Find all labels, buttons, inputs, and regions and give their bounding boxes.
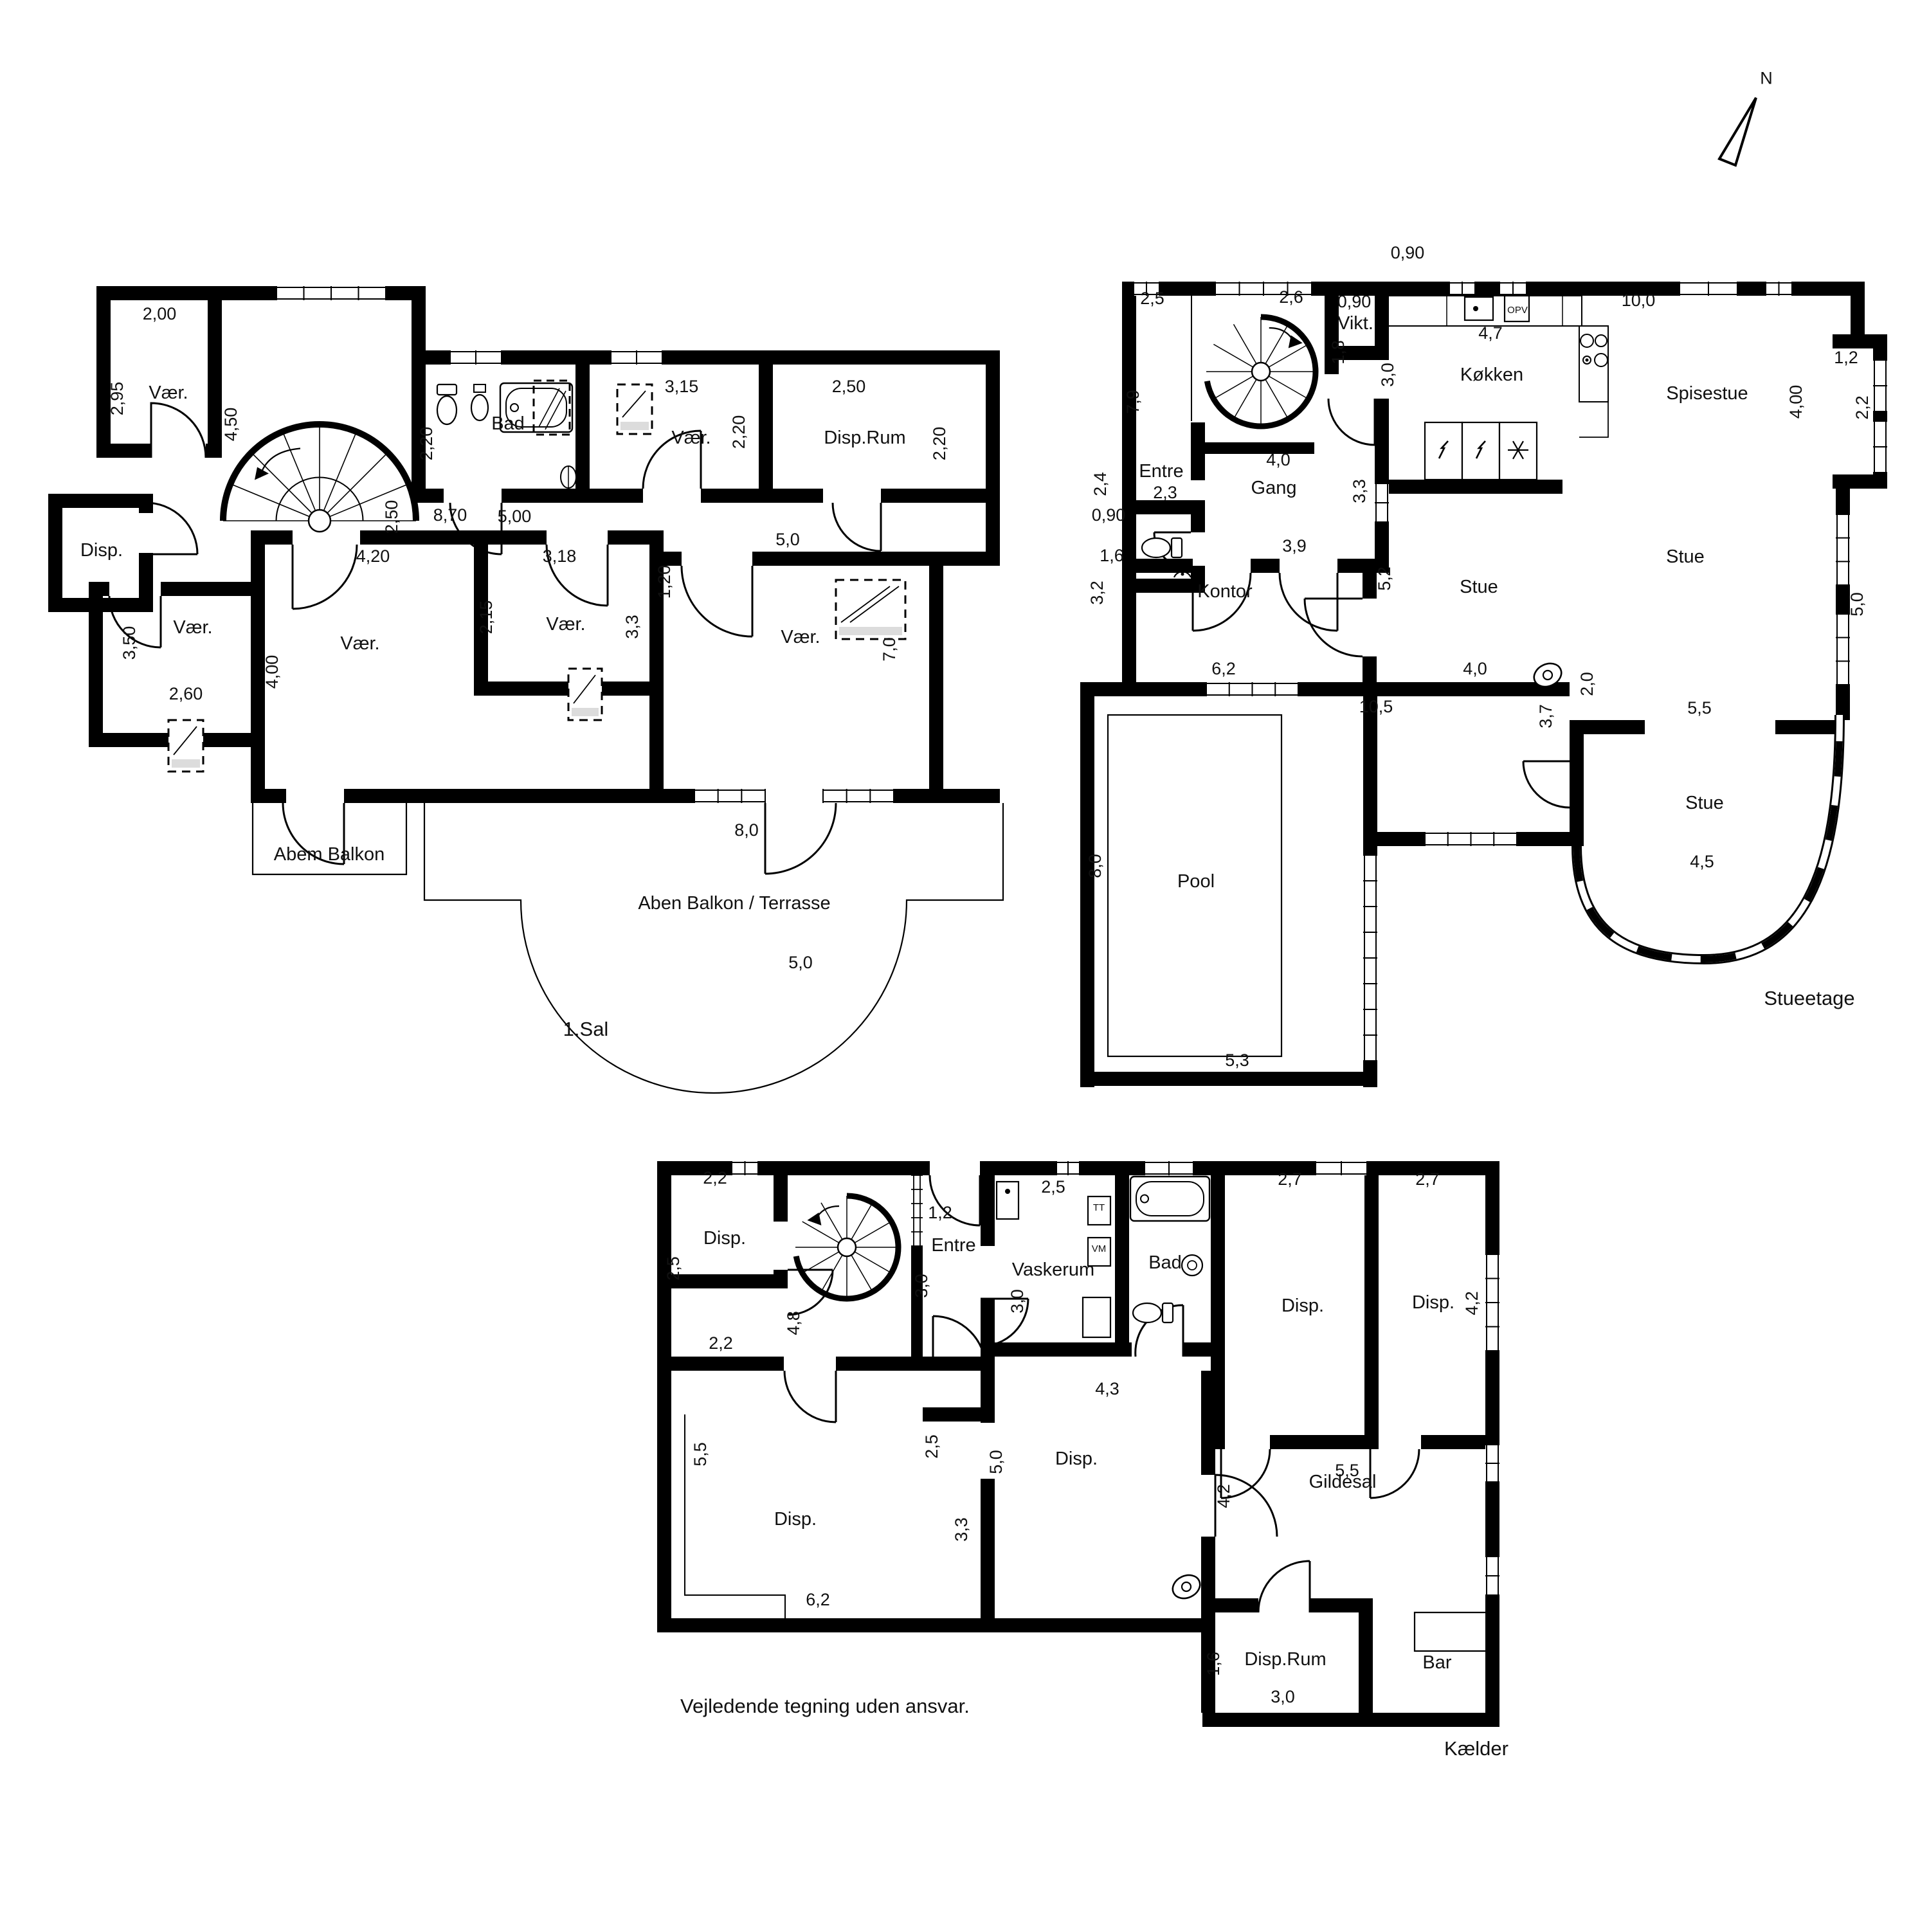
dimension-label: 5,0	[1847, 592, 1867, 617]
dimension-label: 2,20	[417, 427, 436, 461]
window-icon	[1485, 1557, 1499, 1595]
basement-plan: Disp.EntreVaskerumBadDisp.Disp.Disp.Disp…	[657, 1161, 1499, 1727]
window-icon	[1485, 1445, 1499, 1482]
toilet-icon	[437, 384, 457, 424]
room-label: Aben Balkon / Terrasse	[638, 893, 830, 914]
dimension-label: 8,0	[734, 820, 759, 840]
room-label: Abem Balkon	[274, 844, 385, 865]
dimension-label: 4,0	[1463, 659, 1487, 678]
bathtub-icon	[1130, 1177, 1209, 1221]
floor-caption-first-floor: 1.Sal	[563, 1018, 609, 1041]
dimension-label: 4,2	[1214, 1484, 1233, 1508]
dimension-label: 4,3	[1095, 1379, 1119, 1398]
terrace-outline	[424, 803, 1003, 1093]
room-label: Bar	[1422, 1652, 1451, 1673]
room-label: Disp.	[1412, 1292, 1454, 1313]
north-arrow-icon	[1704, 84, 1781, 180]
door-arc-icon	[1305, 599, 1363, 656]
dimension-label: 2,50	[832, 377, 866, 396]
door-arc-icon	[293, 545, 357, 609]
bar-counter-icon	[1415, 1612, 1488, 1651]
dimension-label: 4,00	[1786, 385, 1806, 419]
dimension-label: 4,20	[356, 546, 390, 566]
dimension-label: 0,90	[1092, 505, 1126, 525]
dimension-label: 4,0	[1266, 450, 1291, 469]
laundry-sink-icon	[997, 1182, 1019, 1219]
window-icon	[611, 350, 662, 365]
dimension-label: 3,2	[1087, 581, 1107, 605]
appliance-label: TT	[1093, 1202, 1105, 1213]
first-floor-plan: Vær.Disp.BadVær.Disp.RumVær.Vær.Vær.Vær.…	[48, 286, 1003, 1093]
dimension-label: 3,9	[1282, 536, 1307, 555]
room-label: Bad	[491, 413, 525, 434]
room-label: Vær.	[546, 614, 585, 635]
glass-partition-icon	[911, 1175, 923, 1246]
window-icon	[1836, 514, 1850, 585]
freezer-icon	[1499, 422, 1537, 480]
spiral-staircase-icon	[1206, 317, 1316, 426]
dimension-label: 2,0	[1577, 672, 1597, 696]
sink-icon	[561, 466, 576, 488]
spiral-staircase-icon	[795, 1196, 898, 1299]
window-icon	[1766, 282, 1792, 296]
window-icon	[694, 789, 765, 803]
dimension-label: 0,90	[1337, 292, 1372, 311]
dimension-label: 3,50	[120, 626, 139, 660]
dimension-label: 4,8	[784, 1311, 803, 1335]
dimension-label: 2,5	[664, 1256, 683, 1281]
sink-icon	[1182, 1255, 1202, 1276]
dimension-label: 8,70	[433, 505, 467, 525]
dimension-label: 2,4	[1091, 472, 1110, 496]
dimension-label: 2,5	[922, 1434, 941, 1459]
door-arc-icon	[682, 566, 752, 636]
room-label: Disp.	[774, 1509, 817, 1530]
fridge-icon	[1462, 422, 1499, 480]
dimension-label: 0,90	[1391, 243, 1425, 262]
dimension-label: 2,5	[1140, 289, 1164, 308]
dimension-label: 1,20	[655, 565, 674, 599]
dimension-label: 5,5	[1687, 698, 1712, 718]
door-arc-icon	[765, 803, 836, 874]
door-arc-icon	[1328, 399, 1375, 445]
door-arc-icon	[146, 503, 197, 554]
kitchen-sink-icon	[1465, 297, 1493, 320]
window-icon	[1363, 855, 1377, 1061]
ground-floor-plan: EntreVikt.GangKøkkenSpisestueKontorStueS…	[1080, 243, 1887, 1087]
room-label: Bad	[1148, 1252, 1182, 1273]
dimension-label: 2,2	[703, 1168, 727, 1187]
dimension-label: 4,50	[221, 408, 240, 442]
floor-plan-canvas: Vær.Disp.BadVær.Disp.RumVær.Vær.Vær.Vær.…	[0, 0, 1929, 1929]
appliance-label: OPV	[1507, 305, 1528, 316]
room-label: Gang	[1251, 478, 1297, 498]
stove-icon	[1579, 326, 1608, 437]
dimension-label: 1,8	[1328, 340, 1348, 365]
floor-plan-drawing: Vær.Disp.BadVær.Disp.RumVær.Vær.Vær.Vær.…	[0, 0, 1929, 1929]
door-arc-icon	[151, 403, 206, 458]
window-icon	[1145, 1161, 1193, 1175]
dimension-label: 2,6	[1279, 287, 1303, 307]
dimension-label: 2,60	[169, 684, 203, 703]
dimension-label: 2,2	[1852, 395, 1872, 420]
window-icon	[1449, 282, 1475, 296]
dimension-label: 3,7	[1536, 704, 1555, 728]
laundry-basin-icon	[1083, 1297, 1110, 1337]
disclaimer-note: Vejledende tegning uden ansvar.	[680, 1695, 970, 1718]
dimension-label: 3,0	[1271, 1687, 1295, 1706]
room-label: Disp.	[703, 1228, 746, 1249]
door-arc-icon	[1523, 761, 1570, 808]
dimension-label: 4,2	[1462, 1291, 1481, 1315]
dimension-label: 1,2	[928, 1203, 952, 1222]
room-label: Vær.	[149, 383, 188, 403]
dimension-label: 6,2	[806, 1590, 830, 1609]
dimension-label: 5,3	[1225, 1051, 1249, 1070]
door-arc-icon	[1258, 1561, 1310, 1612]
room-label: Vikt.	[1337, 313, 1373, 334]
dimension-label: 10,0	[1622, 291, 1656, 310]
room-label: Kontor	[1197, 581, 1253, 602]
door-arc-icon	[784, 1371, 836, 1422]
dimension-label: 2,50	[382, 500, 401, 534]
window-icon	[1425, 832, 1517, 846]
door-arc-icon	[833, 503, 881, 551]
toilet-icon	[1133, 1303, 1173, 1323]
dimension-label: 5,0	[775, 530, 800, 549]
dimension-label: 2,5	[1041, 1177, 1065, 1196]
room-label: Entre	[1139, 461, 1183, 482]
window-icon	[823, 789, 894, 803]
dimension-label: 5,5	[1335, 1461, 1359, 1480]
dimension-label: 8,0	[1085, 854, 1105, 878]
toilet-icon	[1142, 538, 1182, 557]
dimension-label: 4,5	[1690, 852, 1714, 871]
room-label: Vær.	[781, 627, 820, 647]
bidet-icon	[471, 384, 488, 420]
room-label: Disp.Rum	[1244, 1649, 1326, 1670]
roof-window-icon	[168, 720, 203, 772]
window-icon	[1873, 421, 1887, 473]
dimension-label: 6,2	[1211, 659, 1236, 678]
window-icon	[450, 350, 502, 365]
dimension-label: 4,7	[1478, 323, 1503, 343]
dimension-label: 7,0	[880, 637, 899, 662]
window-icon	[276, 286, 386, 300]
dimension-label: 2,2	[709, 1333, 733, 1353]
dimension-label: 1,2	[1834, 348, 1858, 367]
window-icon	[732, 1161, 758, 1175]
dimension-label: 3,0	[912, 1274, 931, 1298]
dimension-label: 3,0	[1378, 363, 1397, 387]
room-label: Disp.	[1281, 1296, 1324, 1316]
dimension-label: 5,0	[986, 1450, 1006, 1474]
roof-window-icon	[836, 580, 905, 639]
dimension-label: 3,15	[665, 377, 699, 396]
floor-caption-ground-floor: Stueetage	[1764, 987, 1854, 1010]
roof-window-icon	[617, 384, 652, 434]
room-label: Stue	[1666, 546, 1705, 567]
window-icon	[1375, 483, 1389, 522]
dimension-label: 2,3	[1153, 483, 1177, 502]
dimension-label: 7,9	[1123, 390, 1143, 414]
window-icon	[1873, 360, 1887, 411]
dimension-label: 2,7	[1415, 1169, 1440, 1189]
room-label: Entre	[931, 1235, 975, 1256]
door-arc-icon	[1370, 1449, 1419, 1498]
dimension-label: 3,3	[1350, 479, 1369, 503]
dimension-label: 2,95	[107, 382, 127, 416]
window-icon	[1836, 614, 1850, 685]
window-icon	[1056, 1161, 1080, 1175]
dimension-label: 5,00	[498, 507, 532, 526]
dimension-label: 2,15	[476, 600, 496, 635]
roof-window-icon	[568, 669, 602, 720]
room-label: Vær.	[671, 428, 711, 448]
room-label: Vær.	[173, 617, 212, 638]
window-icon	[1680, 282, 1737, 296]
room-label: Stue	[1460, 577, 1498, 597]
dimension-label: 10,5	[1359, 697, 1393, 716]
dimension-label: 5,5	[691, 1442, 710, 1467]
room-label: Spisestue	[1666, 383, 1748, 404]
dimension-label: 1,6	[1204, 1652, 1223, 1676]
window-icon	[1485, 1254, 1499, 1351]
dimension-label: 5,0	[788, 953, 813, 972]
dimension-label: 1,6	[1100, 546, 1124, 565]
window-icon	[1316, 1161, 1367, 1175]
dimension-label: 3,18	[543, 546, 577, 566]
dimension-label: 3,3	[952, 1517, 971, 1542]
fridge-icon	[1425, 422, 1462, 480]
dimension-label: 5,2	[1375, 566, 1394, 591]
room-label: Disp.	[80, 540, 123, 561]
dimension-label: 3,3	[622, 615, 642, 639]
room-label: Vær.	[340, 633, 379, 654]
room-label: Disp.Rum	[824, 428, 905, 448]
room-label: Disp.	[1055, 1449, 1098, 1469]
room-label: Vaskerum	[1012, 1259, 1094, 1280]
dimension-label: 2,20	[930, 427, 949, 461]
room-label: Køkken	[1460, 365, 1523, 385]
floor-caption-basement: Kælder	[1444, 1737, 1508, 1760]
room-label: Pool	[1177, 871, 1215, 892]
wall-lamp-icon	[1169, 1571, 1204, 1602]
dimension-label: 2,00	[143, 304, 177, 323]
appliance-label: VM	[1092, 1243, 1107, 1254]
bay-window-icon	[1577, 715, 1840, 959]
dimension-label: 3,0	[1008, 1289, 1027, 1314]
window-icon	[1499, 282, 1526, 296]
dimension-label: 2,20	[729, 415, 748, 449]
window-icon	[1206, 682, 1298, 696]
room-label: Stue	[1685, 793, 1724, 813]
door-arc-icon	[1280, 573, 1337, 631]
dimension-label: 2,7	[1278, 1169, 1302, 1189]
dimension-label: 4,00	[262, 655, 282, 689]
